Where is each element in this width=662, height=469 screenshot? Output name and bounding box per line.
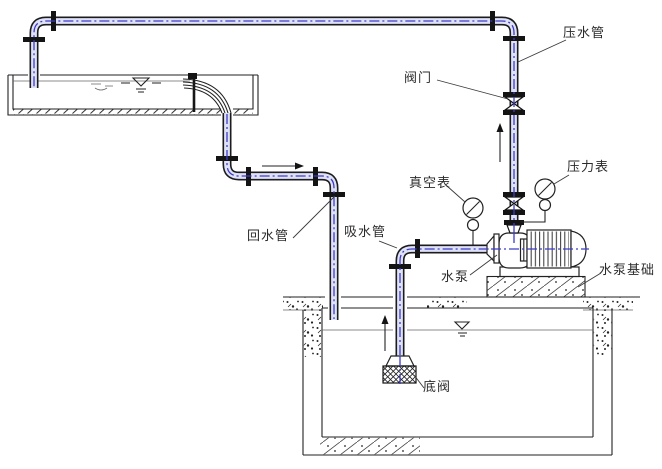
inlet-splash-marks bbox=[91, 84, 113, 90]
label-pressure-pipe: 压水管 bbox=[563, 26, 605, 41]
pump bbox=[487, 230, 586, 297]
ground-hatch-right bbox=[583, 298, 633, 310]
pressure-gauge-cock bbox=[540, 200, 551, 211]
tank-bottom-hatch bbox=[13, 110, 221, 115]
upper-tank bbox=[8, 73, 258, 115]
label-return-pipe: 回水管 bbox=[247, 229, 289, 244]
ground-hatch-left bbox=[283, 298, 323, 310]
discharge-pipe bbox=[34, 21, 514, 233]
pressure-gauge bbox=[520, 179, 555, 222]
lower-sump bbox=[283, 297, 640, 455]
diagram-canvas: 压水管 阀门 真空表 压力表 回水管 吸水管 水泵 水泵基础 底阀 bbox=[0, 0, 662, 469]
vacuum-gauge bbox=[463, 198, 483, 245]
overflow-curve bbox=[183, 79, 231, 113]
sump-floor-hatch bbox=[320, 438, 420, 455]
leader-lines bbox=[293, 40, 601, 388]
return-pipe bbox=[227, 113, 334, 320]
label-valve: 阀门 bbox=[404, 71, 432, 86]
pump-foundation-block bbox=[487, 277, 585, 298]
label-pressure-gauge: 压力表 bbox=[567, 160, 609, 175]
up-arrow-suction bbox=[382, 315, 389, 324]
label-pump-foundation: 水泵基础 bbox=[599, 263, 655, 278]
label-suction-pipe: 吸水管 bbox=[344, 225, 386, 240]
sump-wall-right-hatch bbox=[594, 310, 612, 355]
ground-hatch-mid bbox=[427, 298, 467, 308]
up-arrow-discharge bbox=[497, 123, 504, 132]
label-pump: 水泵 bbox=[441, 270, 469, 285]
label-foot-valve: 底阀 bbox=[423, 380, 451, 395]
right-arrow-return bbox=[295, 163, 304, 170]
vacuum-gauge-cock bbox=[468, 220, 479, 231]
partition-cap bbox=[188, 73, 197, 79]
sump-water-symbol bbox=[455, 322, 469, 336]
label-vacuum-gauge: 真空表 bbox=[409, 176, 451, 191]
water-level-symbol bbox=[121, 78, 161, 92]
pump-system-drawing bbox=[0, 0, 662, 469]
sump-wall-left-hatch bbox=[304, 310, 322, 357]
